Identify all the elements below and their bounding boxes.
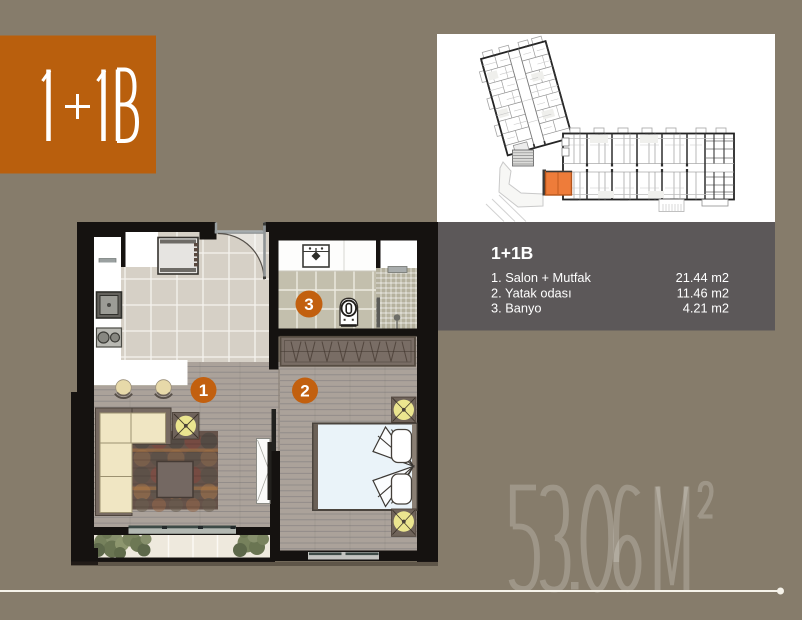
svg-text:1: 1: [199, 381, 208, 400]
svg-text:1. Salon + Mutfak: 1. Salon + Mutfak: [491, 270, 592, 285]
svg-text:21.44 m2: 21.44 m2: [676, 270, 729, 285]
svg-text:3. Banyo: 3. Banyo: [491, 301, 542, 316]
svg-text:4.21 m2: 4.21 m2: [683, 301, 729, 316]
svg-text:3: 3: [304, 295, 313, 314]
svg-text:2. Yatak odası: 2. Yatak odası: [491, 285, 572, 300]
svg-text:1+1B: 1+1B: [491, 243, 533, 263]
svg-text:2: 2: [300, 382, 309, 401]
svg-text:11.46 m2: 11.46 m2: [677, 285, 729, 300]
